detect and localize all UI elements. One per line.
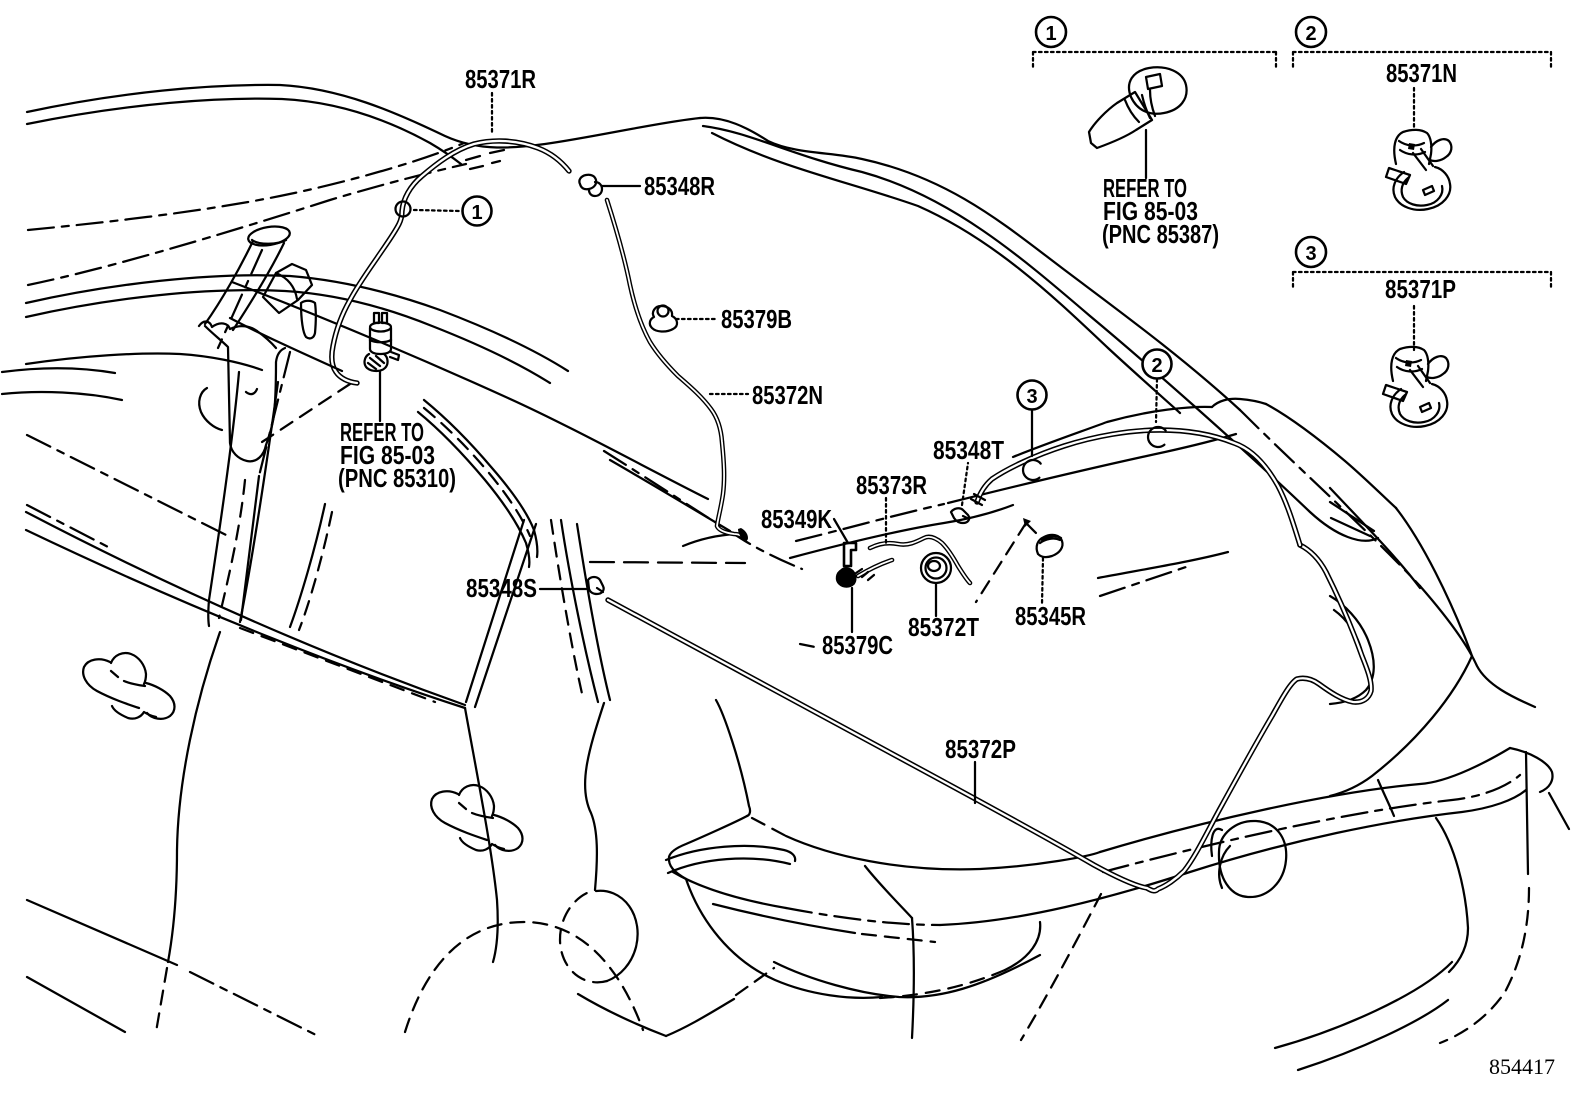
svg-text:85372T: 85372T [908, 612, 979, 642]
svg-text:85371R: 85371R [465, 64, 536, 94]
svg-text:(PNC 85310): (PNC 85310) [338, 463, 456, 493]
svg-text:1: 1 [1045, 23, 1056, 45]
svg-text:3: 3 [1305, 243, 1316, 265]
svg-text:3: 3 [1026, 386, 1037, 408]
svg-text:85345R: 85345R [1015, 601, 1086, 631]
svg-text:1: 1 [471, 202, 482, 224]
svg-text:85349K: 85349K [761, 504, 832, 534]
svg-text:85379B: 85379B [721, 304, 792, 334]
svg-text:(PNC 85387): (PNC 85387) [1102, 219, 1219, 249]
svg-text:85348S: 85348S [466, 573, 537, 603]
svg-text:85379C: 85379C [822, 630, 893, 660]
svg-text:2: 2 [1305, 23, 1316, 45]
svg-text:85348R: 85348R [644, 171, 715, 201]
svg-text:85372P: 85372P [945, 734, 1016, 764]
svg-text:2: 2 [1151, 355, 1162, 377]
svg-text:85372N: 85372N [752, 380, 823, 410]
svg-text:85371N: 85371N [1386, 58, 1457, 88]
svg-text:85348T: 85348T [933, 435, 1004, 465]
svg-text:85373R: 85373R [856, 470, 927, 500]
svg-text:85371P: 85371P [1385, 274, 1456, 304]
svg-text:854417: 854417 [1489, 1054, 1555, 1079]
